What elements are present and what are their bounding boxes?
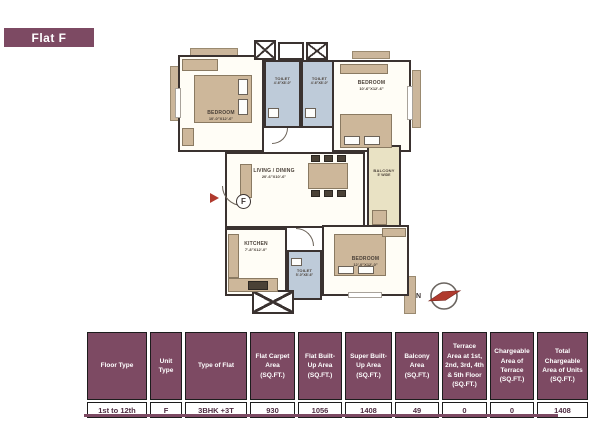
col-header-balcony-area: Balcony Area (SQ.FT.) <box>395 332 439 400</box>
flat-entrance-marker: F <box>236 194 251 209</box>
compass-north-label: N <box>416 293 421 300</box>
col-header-flat-carpet-area: Flat Carpet Area (SQ.FT.) <box>250 332 295 400</box>
wardrobe-icon <box>182 59 218 71</box>
compass-icon <box>424 276 464 316</box>
col-header-chargeable-area-terrace: Chargeable Area of Terrace (SQ.FT.) <box>490 332 534 400</box>
flat-marker-label: F <box>241 197 246 206</box>
brochure-page: Flat F <box>0 0 601 423</box>
col-header-unit-type: Unit Type <box>150 332 182 400</box>
room-label: BALCONY 5' WIDE <box>367 168 401 177</box>
dining-chair-icon <box>311 190 320 197</box>
floor-plan: F BEDROOM 10'-0"X12'-6" TOILET 4'-6"X8'-… <box>168 38 430 318</box>
table-bottom-rule <box>84 414 558 417</box>
col-header-type-of-flat: Type of Flat <box>185 332 247 400</box>
room-label: KITCHEN 7'-8"X12'-0" <box>225 241 287 252</box>
col-header-super-built-up-area: Super Built-Up Area (SQ.FT.) <box>345 332 392 400</box>
room-label: TOILET 4'-6"X8'-0" <box>264 76 301 85</box>
room-label: BEDROOM 12'-0"X12'-0" <box>322 256 409 267</box>
exterior-wall-pad <box>412 70 421 128</box>
col-header-terrace-area: Terrace Area at 1st, 2nd, 3rd, 4th & 5th… <box>442 332 487 400</box>
dining-chair-icon <box>337 190 346 197</box>
window <box>348 292 382 298</box>
shaft-icon <box>306 42 328 60</box>
col-header-total-chargeable-area: Total Chargeable Area of Units (SQ.FT.) <box>537 332 588 400</box>
shaft-icon <box>254 40 276 60</box>
area-table: Floor Type Unit Type Type of Flat Flat C… <box>84 330 591 420</box>
area-table-section: Floor Type Unit Type Type of Flat Flat C… <box>84 330 558 420</box>
pillow-icon <box>364 136 380 145</box>
wardrobe-icon <box>382 228 406 237</box>
entrance-arrow-icon <box>210 193 219 203</box>
door-arc <box>272 128 288 144</box>
dining-chair-icon <box>324 190 333 197</box>
col-header-floor-type: Floor Type <box>87 332 147 400</box>
pillow-icon <box>238 79 248 95</box>
stove-icon <box>248 281 268 290</box>
pillow-icon <box>344 136 360 145</box>
room-label: LIVING / DINING 20'-6"X10'-6" <box>243 168 305 179</box>
wc-icon <box>305 108 316 118</box>
dining-table-icon <box>308 163 348 189</box>
dining-chair-icon <box>337 155 346 162</box>
side-table-icon <box>182 128 194 146</box>
exterior-wall-pad <box>352 51 390 59</box>
col-header-flat-built-up-area: Flat Built-Up Area (SQ.FT.) <box>298 332 342 400</box>
wardrobe-icon <box>340 64 388 74</box>
room-label: BEDROOM 10'-6"X12'-6" <box>332 80 411 91</box>
washbasin-icon <box>291 258 302 266</box>
balcony-chair-icon <box>372 210 387 225</box>
duct-box <box>278 42 304 60</box>
dining-chair-icon <box>311 155 320 162</box>
shaft-icon <box>252 290 294 314</box>
table-header-row: Floor Type Unit Type Type of Flat Flat C… <box>87 332 588 400</box>
wc-icon <box>268 108 279 118</box>
door-arc <box>296 228 314 246</box>
flat-title-bar: Flat F <box>4 28 94 47</box>
flat-title: Flat F <box>32 31 67 45</box>
dining-chair-icon <box>324 155 333 162</box>
room-label: BEDROOM 10'-0"X12'-6" <box>178 110 264 121</box>
room-label: TOILET 5'-0"X8'-6" <box>287 268 322 277</box>
